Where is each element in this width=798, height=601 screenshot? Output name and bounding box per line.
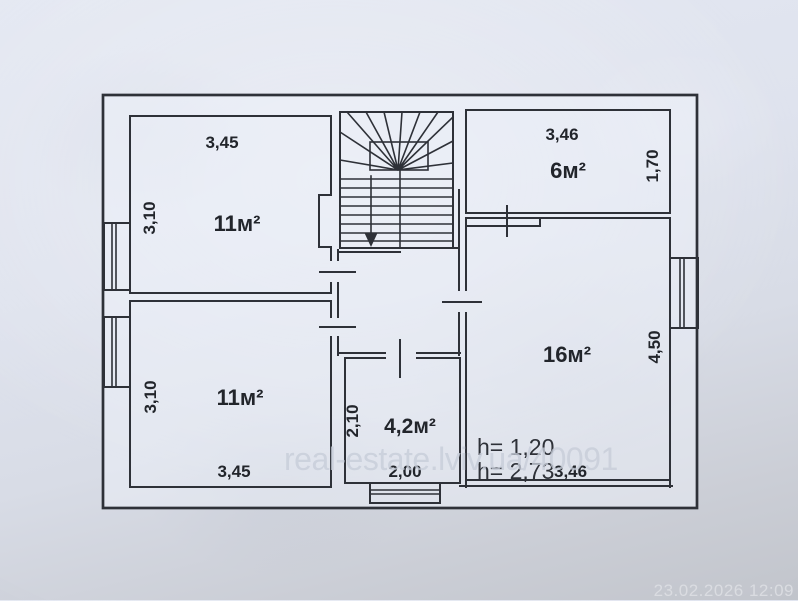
room-area-label-4-2: 4,2м² xyxy=(384,415,436,438)
dim-label-16-height: 4,50 xyxy=(645,330,664,363)
dim-label-4-2-height: 2,10 xyxy=(343,404,362,437)
room-area-label-6: 6м² xyxy=(550,158,586,183)
dim-label-bottom-left-width: 3,45 xyxy=(217,462,250,481)
floor-plan-svg: 3,45 3,10 11м² 3,46 6м² 1,70 16м² 4,50 3… xyxy=(0,0,798,600)
dim-label-6-height: 1,70 xyxy=(643,149,662,182)
dim-label-6-width: 3,46 xyxy=(545,125,578,144)
dim-label-top-left-height: 3,10 xyxy=(140,201,159,234)
room-area-label-11-bottom: 11м² xyxy=(217,385,264,410)
room-area-label-11-top: 11м² xyxy=(214,211,261,236)
room-area-label-16: 16м² xyxy=(543,342,591,367)
camera-timestamp: 23.02.2026 12:09 xyxy=(654,581,794,601)
watermark: real-estate.lviv.ua/40091 xyxy=(284,441,618,478)
dim-label-top-left-width: 3,45 xyxy=(205,133,238,152)
dim-label-bottom-left-height: 3,10 xyxy=(141,380,160,413)
